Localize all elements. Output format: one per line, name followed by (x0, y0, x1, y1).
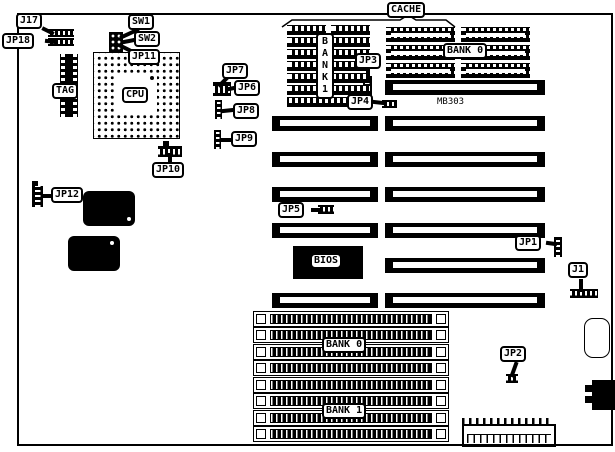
simm-bank1-label: BANK 1 (322, 403, 366, 419)
simm-socket (253, 426, 449, 442)
pin1-marker (150, 76, 154, 80)
callout-jp11: JP11 (128, 49, 160, 65)
callout-jp6: JP6 (234, 80, 260, 96)
pin1-dot (110, 241, 114, 245)
isa-slot (272, 293, 378, 308)
jp8-jumper (215, 100, 222, 119)
cache-chip (331, 73, 370, 83)
isa-slot (385, 187, 545, 202)
callout-jp1: JP1 (515, 235, 541, 251)
cache-chip (386, 27, 455, 42)
isa-slot (385, 293, 545, 308)
isa-slot (385, 258, 545, 273)
simm-socket (253, 311, 449, 327)
isa-slot (385, 116, 545, 131)
isa-slot (272, 187, 378, 202)
callout-sw2: SW2 (134, 31, 160, 47)
callout-jp7: JP7 (222, 63, 248, 79)
tag-label: TAG (52, 83, 78, 99)
callout-jp5: JP5 (278, 202, 304, 218)
isa-slot (272, 223, 378, 238)
callout-j1: J1 (568, 262, 588, 278)
power-connector (462, 424, 556, 447)
keyboard-connector-tab (585, 385, 592, 392)
pin1-dot (127, 217, 131, 221)
cache-chip (331, 37, 370, 47)
jp5-jumper (318, 205, 334, 214)
cache-chip (386, 63, 455, 78)
callout-j17: J17 (16, 13, 42, 29)
callout-jp10: JP10 (152, 162, 184, 178)
jp1-jumper (554, 237, 562, 257)
bios-label: BIOS (311, 254, 341, 268)
callout-jp9: JP9 (231, 131, 257, 147)
cache-chip (331, 25, 370, 35)
simm-bank0-label: BANK 0 (322, 337, 366, 353)
callout-jp18: JP18 (2, 33, 34, 49)
jp4-jumper (382, 100, 397, 108)
motherboard-diagram: J17 JP18 SW1 SW2 JP11 CACHE TAG CPU JP7 … (0, 0, 615, 452)
simm-socket (253, 377, 449, 393)
callout-jp2: JP2 (500, 346, 526, 362)
isa-slot (272, 152, 378, 167)
keyboard-din-connector (592, 380, 615, 410)
plcc-chip-2 (68, 236, 120, 271)
keyboard-connector-tab (585, 396, 592, 403)
plcc-chip-1 (83, 191, 135, 226)
isa-slot (272, 116, 378, 131)
battery (584, 318, 610, 358)
callout-cache: CACHE (387, 2, 425, 18)
jp2-jumper (506, 374, 518, 383)
cache-bank0-label: BANK 0 (443, 43, 487, 59)
cpu-label: CPU (122, 87, 148, 103)
board-model-text: MB303 (437, 97, 464, 107)
jp9-jumper (214, 130, 221, 149)
jp10-jumper (158, 146, 182, 157)
jp12-jumper (32, 186, 43, 207)
callout-jp8: JP8 (233, 103, 259, 119)
cache-chip (461, 63, 530, 78)
callout-jp4: JP4 (347, 94, 373, 110)
callout-sw1: SW1 (128, 14, 154, 30)
simm-socket (253, 360, 449, 376)
callout-jp3: JP3 (355, 53, 381, 69)
cache-chip (461, 27, 530, 42)
callout-jp12: JP12 (51, 187, 83, 203)
j17-pin-header (48, 29, 74, 37)
jp18-pin-header (48, 38, 74, 46)
isa-slot (385, 152, 545, 167)
j1-pin-header (570, 289, 598, 298)
isa-slot (385, 80, 545, 95)
cache-bank1-label: BANK1 (316, 33, 334, 99)
jp7-jp6-jumper-block (213, 82, 231, 96)
